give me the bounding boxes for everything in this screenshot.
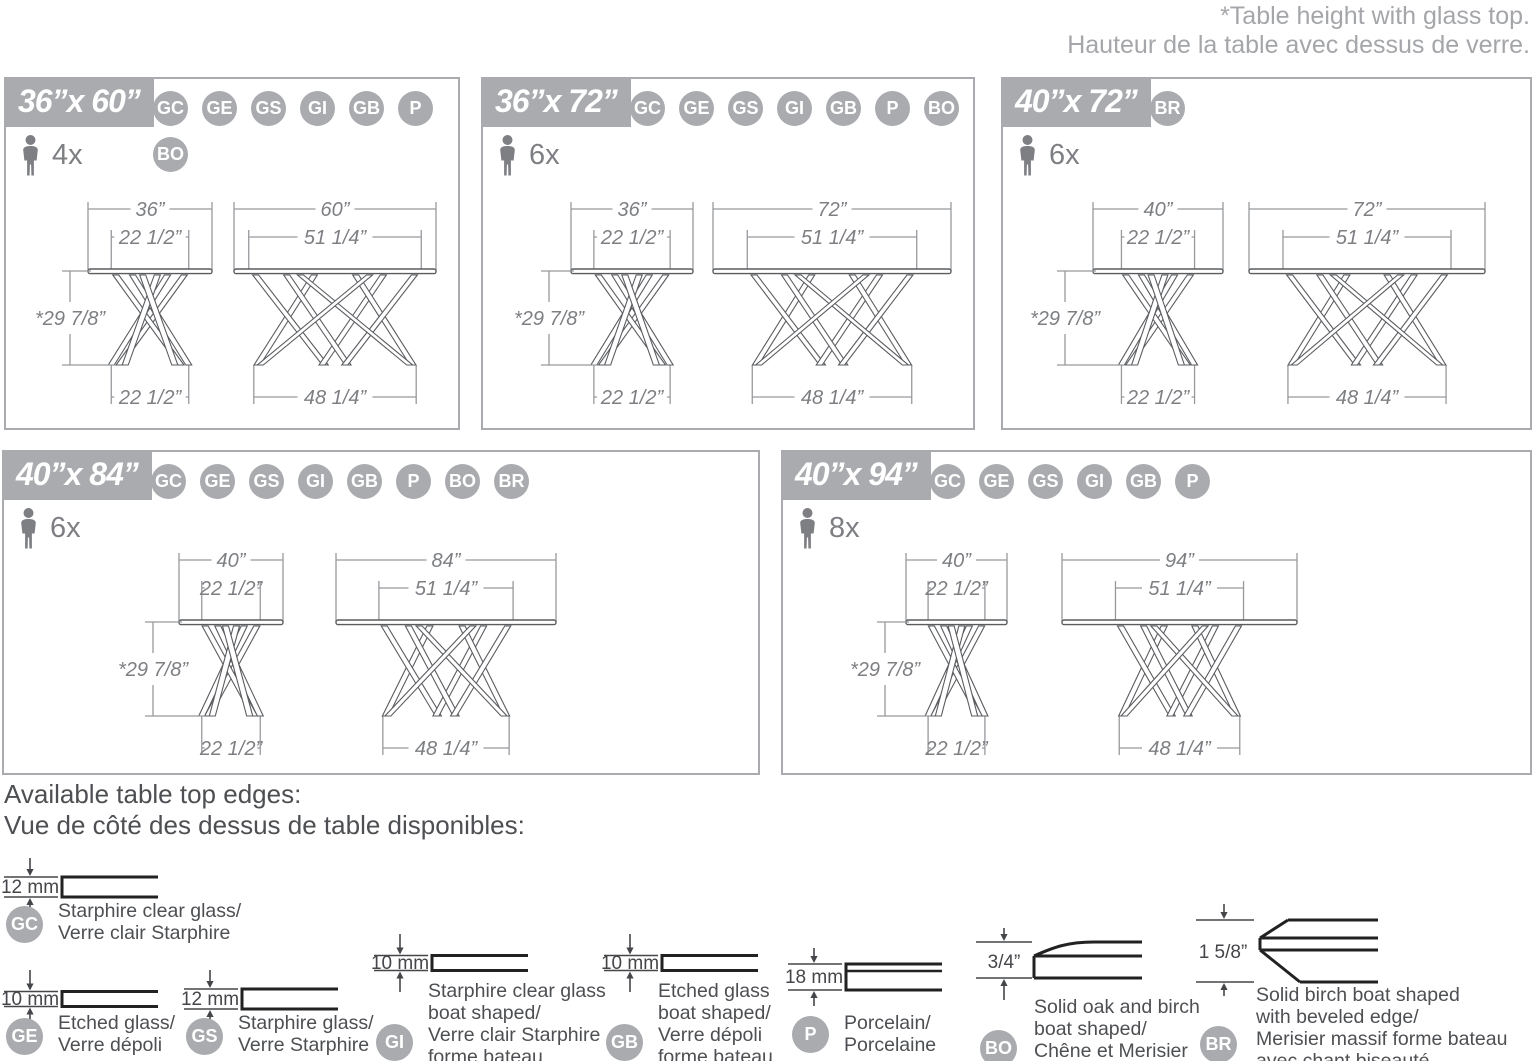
svg-text:*29 7/8”: *29 7/8”: [35, 308, 106, 330]
panel-size-tab: 40”x 94”: [781, 450, 931, 500]
edge-description-line: Etched glass: [658, 980, 773, 1002]
svg-text:22 1/2”: 22 1/2”: [600, 387, 665, 409]
seating-capacity: 6x: [1015, 135, 1080, 176]
edge-badge-gb: GB: [347, 464, 382, 499]
svg-text:51 1/4”: 51 1/4”: [1336, 227, 1400, 249]
edge-code-badge-p: P: [792, 1016, 829, 1053]
edge-description-line: boat shaped/: [428, 1002, 606, 1024]
edge-profile-drawing: 1 5/8”: [1196, 898, 1381, 998]
edges-heading: Available table top edges: Vue de côté d…: [4, 779, 525, 841]
svg-text:22 1/2”: 22 1/2”: [924, 738, 989, 760]
person-icon: [18, 135, 43, 176]
edge-badge-gc: GC: [930, 464, 965, 499]
edge-description-line: Verre Starphire: [238, 1034, 373, 1056]
svg-text:51 1/4”: 51 1/4”: [801, 227, 865, 249]
svg-text:18 mm: 18 mm: [786, 967, 843, 988]
edge-description-line: Starphire clear glass: [428, 980, 606, 1002]
edge-code-badge-br: BR: [1200, 1026, 1237, 1061]
edge-badge-br: BR: [494, 464, 529, 499]
size-panel-40x84: 40”x 84”GCGEGSGIGBPBOBR 6x40”22 1/2”22 1…: [2, 450, 760, 775]
edge-description-line: Starphire clear glass/: [58, 900, 241, 922]
size-panel-40x72: 40”x 72”BR 6x40”22 1/2”22 1/2”*29 7/8”72…: [1001, 77, 1532, 430]
svg-text:72”: 72”: [818, 199, 848, 221]
edge-badge-br: BR: [1150, 91, 1185, 126]
svg-text:48 1/4”: 48 1/4”: [415, 738, 479, 760]
edge-code-badge-gi: GI: [376, 1024, 413, 1061]
seat-count: 6x: [529, 139, 560, 172]
edge-badge-p: P: [1175, 464, 1210, 499]
edge-description-line: Porcelain/: [844, 1012, 936, 1034]
footnote: *Table height with glass top. Hauteur de…: [1067, 2, 1530, 60]
edge-description-line: Solid oak and birch: [1034, 996, 1211, 1018]
svg-text:51 1/4”: 51 1/4”: [304, 227, 368, 249]
svg-text:1 5/8”: 1 5/8”: [1199, 942, 1248, 963]
edge-profile-drawing: 3/4”: [976, 926, 1146, 1004]
svg-text:10 mm: 10 mm: [372, 953, 429, 974]
svg-text:12 mm: 12 mm: [182, 989, 239, 1010]
edge-description-line: Verre clair Starphire: [428, 1024, 606, 1046]
size-panel-36x72: 36”x 72”GCGEGSGIGBPBO 6x36”22 1/2”22 1/2…: [481, 77, 975, 430]
svg-text:40”: 40”: [217, 550, 247, 572]
edge-badge-gb: GB: [1126, 464, 1161, 499]
edge-description: Solid oak and birchboat shaped/Chêne et …: [1034, 996, 1211, 1061]
svg-text:*29 7/8”: *29 7/8”: [850, 659, 921, 681]
svg-text:22 1/2”: 22 1/2”: [118, 227, 183, 249]
edge-code-badge-ge: GE: [6, 1018, 43, 1055]
edge-description: Starphire clear glass/Verre clair Starph…: [58, 900, 241, 944]
edge-badge-gs: GS: [251, 91, 286, 126]
svg-text:*29 7/8”: *29 7/8”: [514, 308, 585, 330]
edge-item-br: 1 5/8”BRSolid birch boat shapedwith beve…: [1196, 898, 1496, 1061]
svg-text:36”: 36”: [618, 199, 648, 221]
edge-badge-bo: BO: [445, 464, 480, 499]
panel-size-tab: 40”x 84”: [2, 450, 152, 500]
svg-text:*29 7/8”: *29 7/8”: [118, 659, 189, 681]
edge-badge-gc: GC: [151, 464, 186, 499]
edge-badge-p: P: [875, 91, 910, 126]
panel-size-tab: 36”x 60”: [4, 77, 154, 127]
edge-badge-gb: GB: [349, 91, 384, 126]
seating-capacity: 6x: [495, 135, 560, 176]
svg-text:22 1/2”: 22 1/2”: [118, 387, 183, 409]
edge-badge-gc: GC: [630, 91, 665, 126]
edge-description: Porcelain/Porcelaine: [844, 1012, 936, 1056]
edge-description-line: Chêne et Merisier: [1034, 1040, 1211, 1061]
edge-badge-gi: GI: [298, 464, 333, 499]
svg-text:22 1/2”: 22 1/2”: [924, 578, 989, 600]
size-panel-40x94: 40”x 94”GCGEGSGIGBP 8x40”22 1/2”22 1/2”*…: [781, 450, 1532, 775]
edge-description-line: boat shaped/: [1034, 1018, 1211, 1040]
edge-code-badge-gc: GC: [6, 906, 43, 943]
edge-badge-p: P: [398, 91, 433, 126]
svg-text:22 1/2”: 22 1/2”: [199, 738, 264, 760]
panel-size-tab: 40”x 72”: [1001, 77, 1151, 127]
svg-text:72”: 72”: [1353, 199, 1383, 221]
svg-text:48 1/4”: 48 1/4”: [801, 387, 865, 409]
table-spec-sheet: *Table height with glass top. Hauteur de…: [0, 0, 1536, 1061]
person-icon: [495, 135, 520, 176]
edge-badge-ge: GE: [200, 464, 235, 499]
seating-capacity: 4x: [18, 135, 83, 176]
edge-badge-gs: GS: [249, 464, 284, 499]
edge-code-badge-gs: GS: [186, 1018, 223, 1055]
dimension-diagram: 40”22 1/2”22 1/2”*29 7/8”84”51 1/4”48 1/…: [10, 536, 752, 776]
edge-badge-gs: GS: [1028, 464, 1063, 499]
svg-text:22 1/2”: 22 1/2”: [1126, 387, 1191, 409]
edge-description: Etched glassboat shaped/Verre dépoliform…: [658, 980, 773, 1061]
edge-description-line: Verre clair Starphire: [58, 922, 241, 944]
svg-text:12 mm: 12 mm: [2, 877, 59, 898]
edge-badge-gs: GS: [728, 91, 763, 126]
edge-description: Etched glass/Verre dépoli: [58, 1012, 175, 1056]
edge-description-line: Merisier massif forme bateau: [1256, 1028, 1507, 1050]
svg-text:22 1/2”: 22 1/2”: [600, 227, 665, 249]
edge-description-line: Porcelaine: [844, 1034, 936, 1056]
seat-count: 6x: [1049, 139, 1080, 172]
edge-code-badge-gb: GB: [606, 1024, 643, 1061]
edge-badge-bo: BO: [153, 137, 188, 172]
edge-profile-drawing: 18 mm: [786, 940, 944, 1014]
svg-text:94”: 94”: [1165, 550, 1195, 572]
dimension-diagram: 40”22 1/2”22 1/2”*29 7/8”94”51 1/4”48 1/…: [789, 536, 1524, 776]
edge-description-line: forme bateau: [428, 1046, 606, 1061]
svg-text:84”: 84”: [432, 550, 462, 572]
dimension-diagram: 36”22 1/2”22 1/2”*29 7/8”60”51 1/4”48 1/…: [12, 185, 452, 425]
person-icon: [1015, 135, 1040, 176]
edge-description-line: Verre dépoli: [658, 1024, 773, 1046]
edge-badge-gi: GI: [300, 91, 335, 126]
footnote-line-en: *Table height with glass top.: [1067, 2, 1530, 31]
svg-text:48 1/4”: 48 1/4”: [1336, 387, 1400, 409]
footnote-line-fr: Hauteur de la table avec dessus de verre…: [1067, 31, 1530, 60]
dimension-diagram: 36”22 1/2”22 1/2”*29 7/8”72”51 1/4”48 1/…: [489, 185, 967, 425]
edge-badge-ge: GE: [679, 91, 714, 126]
svg-text:48 1/4”: 48 1/4”: [1148, 738, 1212, 760]
seat-count: 4x: [52, 139, 83, 172]
edge-description: Solid birch boat shapedwith beveled edge…: [1256, 984, 1507, 1061]
svg-text:51 1/4”: 51 1/4”: [415, 578, 479, 600]
edge-badge-p: P: [396, 464, 431, 499]
svg-text:3/4”: 3/4”: [988, 952, 1021, 973]
edge-badge-gi: GI: [1077, 464, 1112, 499]
svg-text:*29 7/8”: *29 7/8”: [1030, 308, 1101, 330]
edge-description: Starphire glass/Verre Starphire: [238, 1012, 373, 1056]
edge-description-line: Verre dépoli: [58, 1034, 175, 1056]
edge-description-line: Etched glass/: [58, 1012, 175, 1034]
panel-size-tab: 36”x 72”: [481, 77, 631, 127]
svg-text:36”: 36”: [136, 199, 166, 221]
svg-text:22 1/2”: 22 1/2”: [199, 578, 264, 600]
svg-text:10 mm: 10 mm: [2, 989, 59, 1010]
edge-code-badge-bo: BO: [980, 1030, 1017, 1061]
size-panel-36x60: 36”x 60”GCGEGSGIGBPBO 4x36”22 1/2”22 1/2…: [4, 77, 460, 430]
edges-heading-en: Available table top edges:: [4, 779, 525, 810]
svg-text:40”: 40”: [1144, 199, 1174, 221]
svg-text:10 mm: 10 mm: [602, 953, 659, 974]
edge-badge-ge: GE: [979, 464, 1014, 499]
edge-description-line: with beveled edge/: [1256, 1006, 1507, 1028]
svg-text:48 1/4”: 48 1/4”: [304, 387, 368, 409]
edge-description: Starphire clear glassboat shaped/Verre c…: [428, 980, 606, 1061]
edge-description-line: boat shaped/: [658, 1002, 773, 1024]
svg-text:51 1/4”: 51 1/4”: [1148, 578, 1212, 600]
edge-badge-bo: BO: [924, 91, 959, 126]
svg-text:40”: 40”: [942, 550, 972, 572]
edge-description-line: Starphire glass/: [238, 1012, 373, 1034]
edge-badge-gc: GC: [153, 91, 188, 126]
edge-description-line: forme bateau: [658, 1046, 773, 1061]
edge-description-line: avec chant biseauté: [1256, 1050, 1507, 1061]
svg-text:60”: 60”: [321, 199, 351, 221]
edge-description-line: Solid birch boat shaped: [1256, 984, 1507, 1006]
dimension-diagram: 40”22 1/2”22 1/2”*29 7/8”72”51 1/4”48 1/…: [1009, 185, 1523, 425]
svg-text:22 1/2”: 22 1/2”: [1126, 227, 1191, 249]
edge-badge-gb: GB: [826, 91, 861, 126]
edges-heading-fr: Vue de côté des dessus de table disponib…: [4, 810, 525, 841]
edge-badge-gi: GI: [777, 91, 812, 126]
edge-badge-ge: GE: [202, 91, 237, 126]
